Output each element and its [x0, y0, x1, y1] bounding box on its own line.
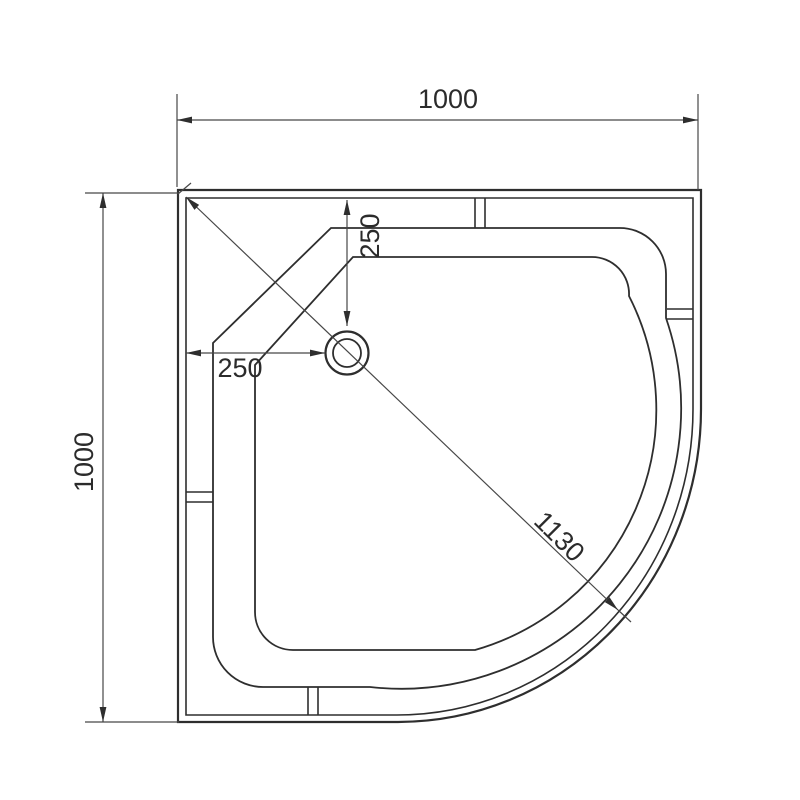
drain-offset-vertical-arrow-top [344, 200, 351, 215]
rim-inner-contour [255, 257, 656, 650]
drawing-sheet: 1000 1000 250 250 [0, 0, 800, 800]
drain-outer-ring [326, 332, 369, 375]
drain-offset-horizontal-dimension: 250 [186, 350, 325, 383]
drain-offset-horizontal-label: 250 [217, 353, 262, 383]
width-arrow-right [683, 117, 698, 124]
panel-joint-left [186, 492, 213, 502]
frame-inner-edge [186, 198, 693, 715]
panel-joint-bottom [308, 687, 318, 715]
width-dimension-label: 1000 [418, 84, 478, 114]
drain-inner-ring [333, 339, 361, 367]
drain-offset-vertical-label: 250 [355, 213, 385, 258]
frame-outer-edge [178, 190, 701, 722]
panel-joint-right [667, 309, 693, 319]
depth-arrow-bottom [100, 707, 107, 722]
depth-dimension-label: 1000 [69, 432, 99, 492]
depth-dimension: 1000 [69, 193, 179, 722]
corner-tick [178, 183, 191, 194]
panel-joint-top [475, 198, 485, 228]
drain-offset-horizontal-arrow-left [186, 350, 201, 357]
diagonal-dimension-label: 1130 [528, 506, 590, 568]
drain-offset-vertical-arrow-bottom [344, 311, 351, 326]
diagonal-dimension: 1130 [178, 183, 631, 622]
width-arrow-left [177, 117, 192, 124]
drain-offset-vertical-dimension: 250 [344, 200, 385, 326]
depth-arrow-top [100, 193, 107, 208]
tray-structure [178, 190, 701, 722]
technical-drawing: 1000 1000 250 250 [0, 0, 800, 800]
drain-offset-horizontal-arrow-right [310, 350, 325, 357]
width-dimension: 1000 [177, 84, 698, 190]
